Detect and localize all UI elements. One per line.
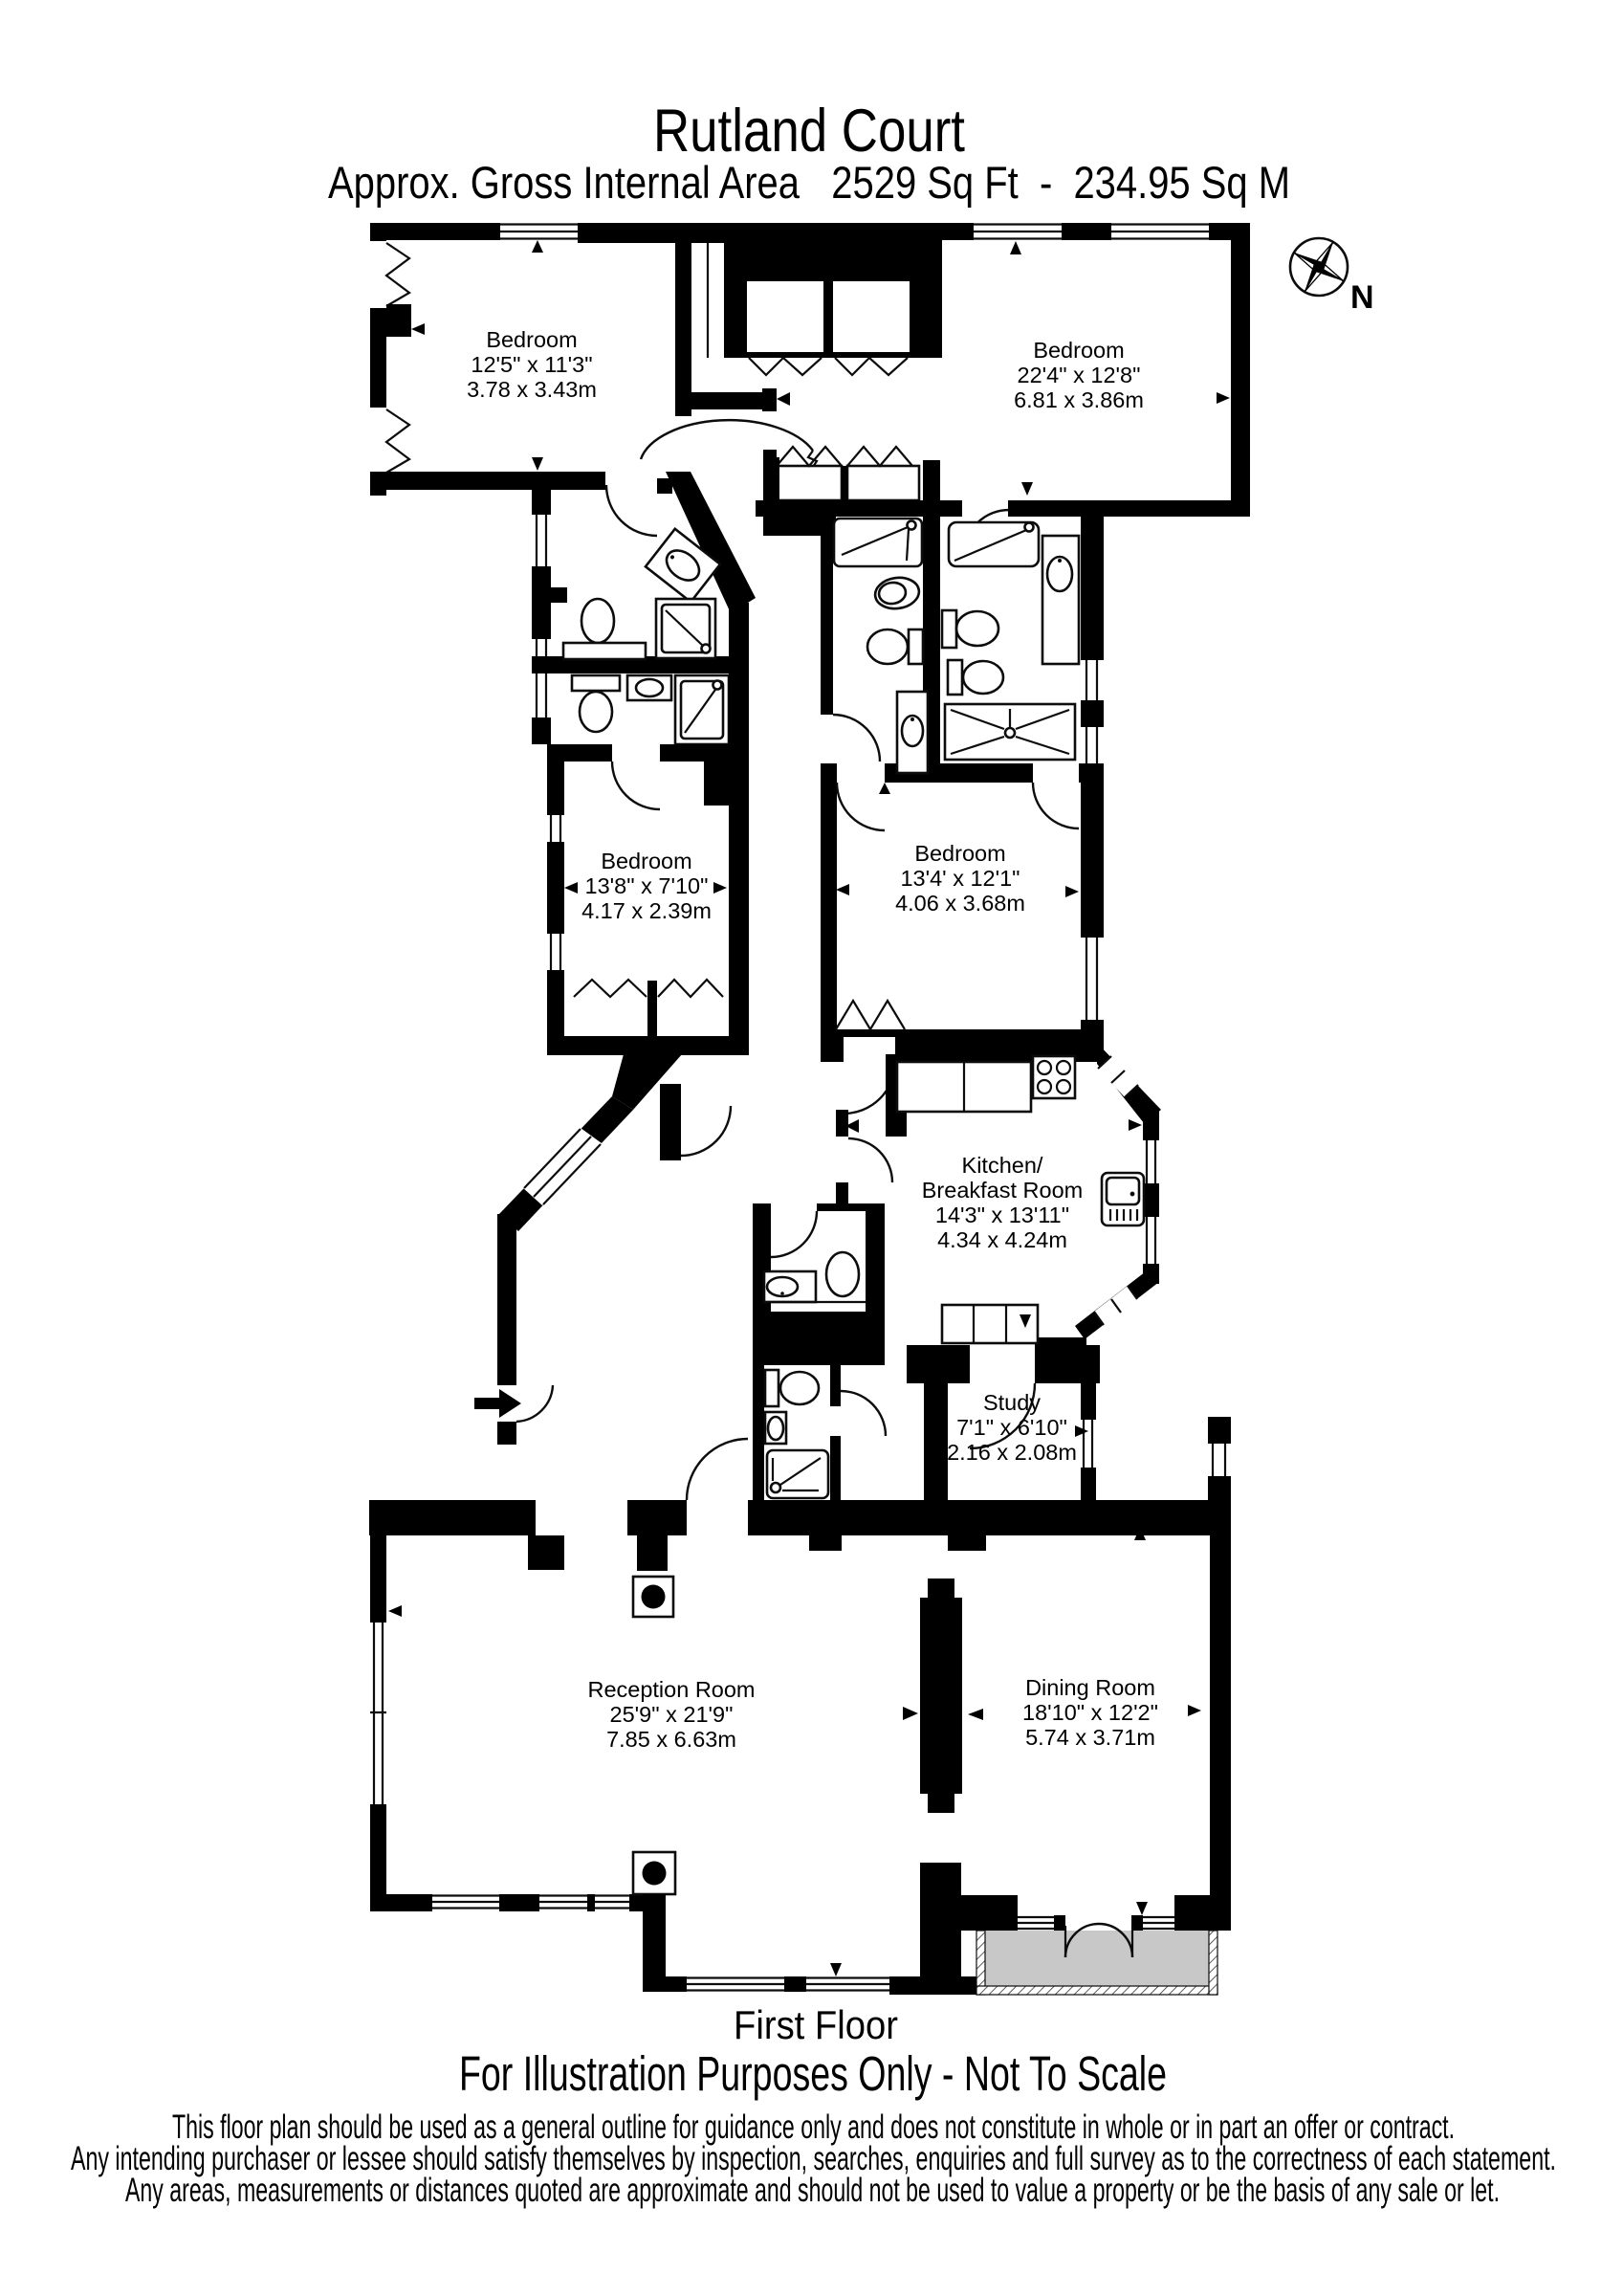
- svg-text:Study: Study: [983, 1390, 1041, 1415]
- svg-text:12'5" x 11'3": 12'5" x 11'3": [471, 352, 592, 377]
- svg-text:N: N: [1350, 279, 1374, 316]
- svg-text:13'8" x 7'10": 13'8" x 7'10": [585, 873, 709, 898]
- svg-text:First Floor: First Floor: [734, 2002, 898, 2047]
- svg-text:Bedroom: Bedroom: [601, 849, 691, 873]
- svg-text:18'10" x 12'2": 18'10" x 12'2": [1022, 1700, 1158, 1725]
- svg-text:Approx. Gross Internal Area: Approx. Gross Internal Area 2529 Sq Ft -…: [328, 157, 1290, 208]
- svg-text:Reception Room: Reception Room: [587, 1677, 755, 1702]
- svg-text:Bedroom: Bedroom: [486, 327, 577, 352]
- svg-text:2.16 x 2.08m: 2.16 x 2.08m: [947, 1440, 1077, 1465]
- svg-text:3.78 x 3.43m: 3.78 x 3.43m: [467, 377, 597, 402]
- svg-text:7.85 x 6.63m: 7.85 x 6.63m: [606, 1727, 736, 1752]
- svg-text:Rutland Court: Rutland Court: [653, 98, 965, 165]
- svg-text:7'1" x 6'10": 7'1" x 6'10": [956, 1415, 1067, 1440]
- svg-text:Kitchen/: Kitchen/: [962, 1153, 1043, 1178]
- svg-text:For Illustration Purposes Only: For Illustration Purposes Only - Not To …: [459, 2046, 1167, 2101]
- svg-text:Any areas, measurements or dis: Any areas, measurements or distances quo…: [125, 2172, 1500, 2209]
- svg-text:4.17 x 2.39m: 4.17 x 2.39m: [581, 898, 712, 923]
- svg-text:4.34 x 4.24m: 4.34 x 4.24m: [937, 1227, 1067, 1252]
- svg-text:13'4' x 12'1": 13'4' x 12'1": [900, 866, 1020, 891]
- svg-text:14'3" x 13'11": 14'3" x 13'11": [935, 1203, 1069, 1227]
- svg-text:Breakfast Room: Breakfast Room: [922, 1178, 1083, 1203]
- svg-text:22'4" x 12'8": 22'4" x 12'8": [1018, 363, 1141, 387]
- svg-text:Bedroom: Bedroom: [914, 841, 1005, 866]
- svg-text:5.74 x 3.71m: 5.74 x 3.71m: [1025, 1725, 1155, 1750]
- svg-text:6.81 x 3.86m: 6.81 x 3.86m: [1014, 387, 1144, 412]
- svg-text:Dining Room: Dining Room: [1025, 1675, 1155, 1700]
- svg-text:25'9" x 21'9": 25'9" x 21'9": [610, 1702, 734, 1727]
- svg-text:Bedroom: Bedroom: [1033, 338, 1124, 363]
- svg-text:4.06 x 3.68m: 4.06 x 3.68m: [895, 891, 1025, 916]
